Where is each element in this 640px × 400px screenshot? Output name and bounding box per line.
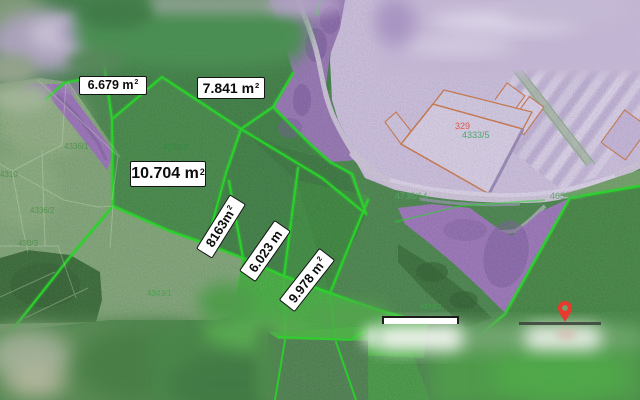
svg-text:4310: 4310: [0, 170, 18, 179]
svg-text:4633/16: 4633/16: [550, 191, 583, 201]
svg-text:4336/1: 4336/1: [64, 142, 89, 151]
svg-text:4336/2: 4336/2: [30, 206, 55, 215]
svg-text:4738/14: 4738/14: [395, 191, 428, 201]
svg-text:4338/4: 4338/4: [163, 143, 188, 152]
svg-text:4343/1: 4343/1: [147, 289, 172, 298]
svg-text:4343/2: 4343/2: [420, 304, 442, 311]
svg-text:4333/5: 4333/5: [462, 130, 490, 140]
svg-text:4333/6: 4333/6: [278, 215, 303, 224]
svg-text:430/3: 430/3: [18, 239, 39, 248]
